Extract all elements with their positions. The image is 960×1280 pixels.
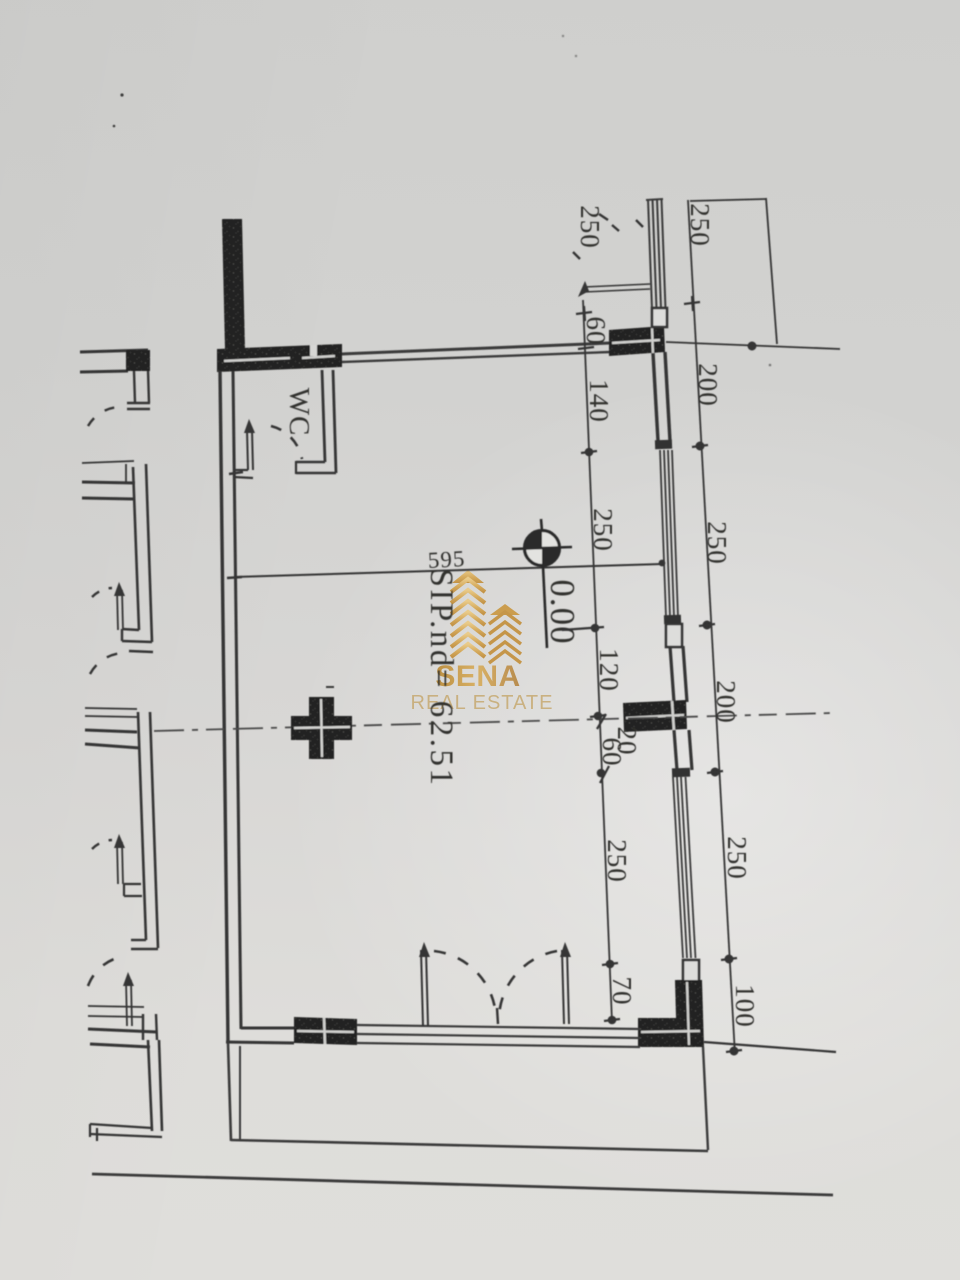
svg-text:120: 120 (594, 648, 624, 692)
svg-text:200: 200 (711, 680, 741, 724)
svg-text:60: 60 (597, 738, 627, 767)
svg-text:250: 250 (685, 203, 715, 247)
svg-text:250: 250 (588, 508, 618, 552)
svg-text:60: 60 (581, 317, 611, 346)
svg-text:250: 250 (575, 205, 605, 249)
svg-text:250: 250 (702, 521, 732, 565)
svg-text:100: 100 (730, 984, 760, 1028)
svg-text:200: 200 (693, 363, 723, 407)
svg-text:WC: WC (283, 388, 315, 437)
svg-text:140: 140 (584, 379, 614, 423)
svg-text:250: 250 (722, 836, 752, 880)
svg-text:250: 250 (602, 839, 632, 883)
svg-text:0.00: 0.00 (543, 579, 582, 644)
svg-text:SIP.nd= 62.51: SIP.nd= 62.51 (423, 569, 459, 788)
svg-text:70: 70 (607, 977, 637, 1006)
